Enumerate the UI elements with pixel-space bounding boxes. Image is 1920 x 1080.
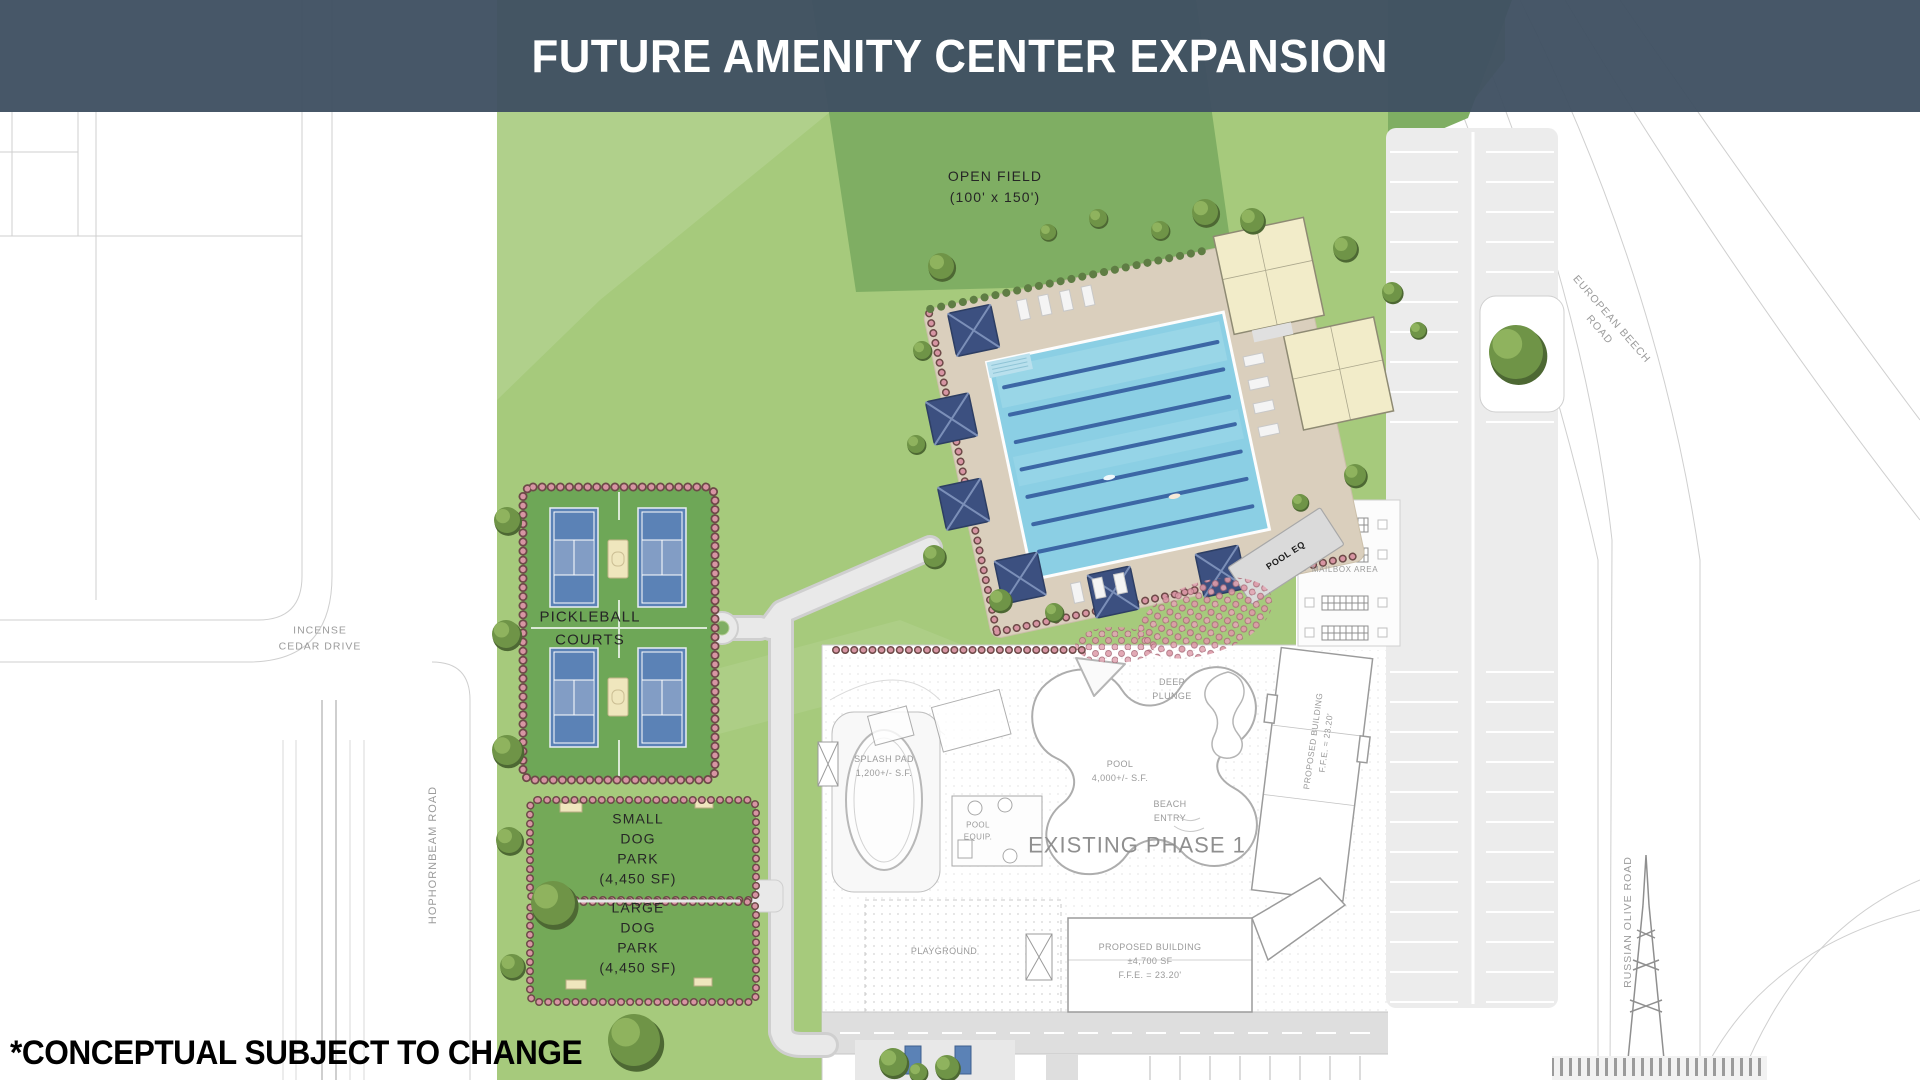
pocket-parking [855, 1040, 1015, 1080]
incense-cedar-drive-label: INCENSE CEDAR DRIVE [279, 623, 362, 655]
disclaimer-note: *CONCEPTUAL SUBJECT TO CHANGE [10, 1034, 582, 1073]
site-plan-page: FUTURE AMENITY CENTER EXPANSION *CONCEPT… [0, 0, 1920, 1080]
title-banner: FUTURE AMENITY CENTER EXPANSION [0, 0, 1920, 112]
playground-label: PLAYGROUND [911, 945, 977, 959]
small-dog-park-label: SMALL DOG PARK (4,450 SF) [599, 809, 676, 889]
rail-crossing-hatch [1552, 1056, 1767, 1080]
pool-equip-label: POOL EQUIP. [964, 820, 993, 845]
proposed-building-main-label: PROPOSED BUILDING ±4,700 SF F.F.E. = 23.… [1099, 941, 1202, 983]
hophornbeam-road-label: HOPHORNBEAM ROAD [425, 786, 442, 924]
page-title: FUTURE AMENITY CENTER EXPANSION [532, 29, 1388, 83]
open-field-label: OPEN FIELD (100' x 150') [948, 166, 1042, 208]
deep-plunge-label: DEEP PLUNGE [1152, 676, 1191, 704]
large-dog-park-label: LARGE DOG PARK (4,450 SF) [599, 898, 676, 978]
pickleball-courts-label: PICKLEBALL COURTS [539, 607, 640, 652]
russian-olive-road-label: RUSSIAN OLIVE ROAD [1621, 856, 1637, 988]
splash-pad-label: SPLASH PAD 1,200+/- S.F. [854, 753, 914, 781]
pool-label: POOL 4,000+/- S.F. [1092, 758, 1148, 786]
beach-entry-label: BEACH ENTRY [1153, 798, 1186, 826]
mailbox-area-label: MAILBOX AREA [1312, 564, 1378, 576]
existing-phase1-label: EXISTING PHASE 1 [1028, 829, 1246, 862]
